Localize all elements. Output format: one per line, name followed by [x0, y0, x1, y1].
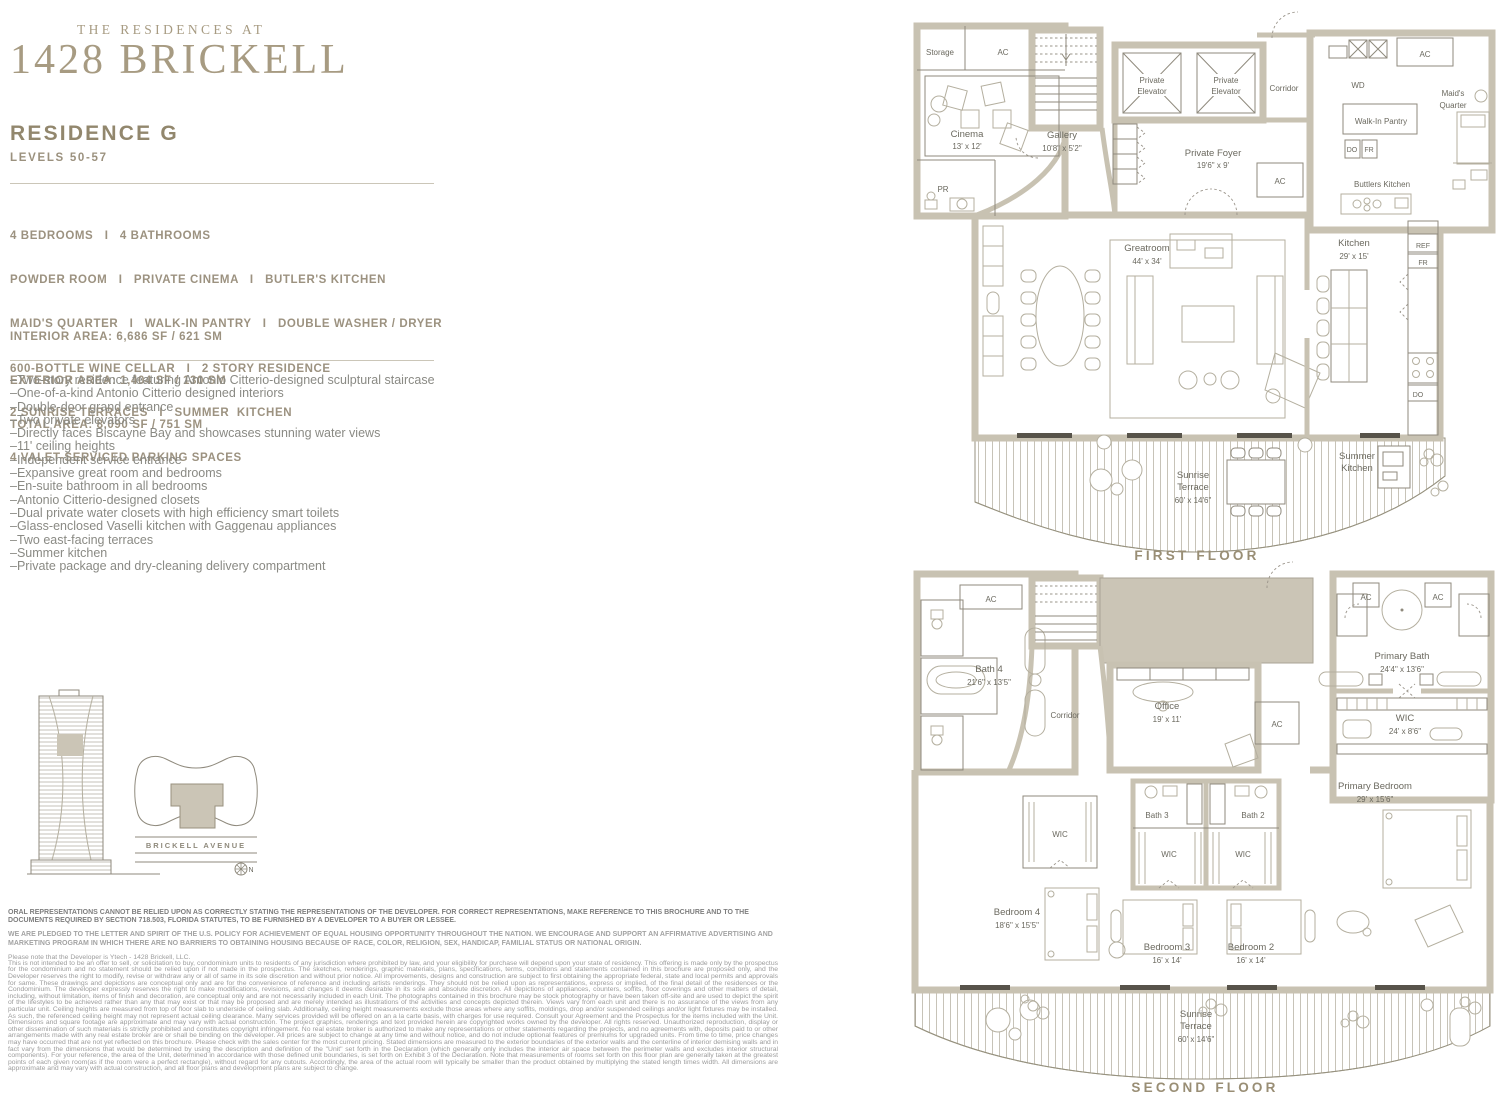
label-cinema: Cinema [951, 129, 984, 140]
legal-disclaimer: ORAL REPRESENTATIONS CANNOT BE RELIED UP… [8, 909, 778, 1073]
label-bath2: Bath 2 [1241, 811, 1265, 820]
feature-bullet: –Summer kitchen [10, 547, 462, 560]
feature-bullet: –En-suite bathroom in all bedrooms [10, 480, 462, 493]
ff-foyer-double-door [1185, 189, 1237, 215]
sf-stair-block [1032, 578, 1100, 646]
svg-text:21'6" x 13'5": 21'6" x 13'5" [967, 678, 1011, 687]
svg-text:19' x 11': 19' x 11' [1153, 715, 1182, 724]
label-ac: AC [1274, 177, 1285, 186]
label-fr: FR [1364, 147, 1373, 154]
svg-text:16' x 14': 16' x 14' [1236, 956, 1266, 965]
svg-text:19'6" x 9': 19'6" x 9' [1197, 161, 1230, 170]
north-compass-icon: N [235, 863, 254, 875]
label-butlers-kitchen: Buttlers Kitchen [1354, 180, 1410, 189]
label-bedroom4: Bedroom 4 [994, 907, 1040, 918]
label-ac: AC [1360, 593, 1371, 602]
key-plan: BRICKELL AVENUE [135, 757, 258, 862]
residence-levels: LEVELS 50-57 [10, 152, 108, 164]
feature-bullet: –Directly faces Biscayne Bay and showcas… [10, 427, 462, 440]
ff-service-block [1310, 33, 1492, 230]
label-pr: PR [937, 185, 948, 194]
feature-bullet: –11' ceiling heights [10, 440, 462, 453]
label-do: DO [1413, 392, 1424, 399]
feature-bullet: –Glass-enclosed Vaselli kitchen with Gag… [10, 520, 462, 533]
second-floor-plan: AC Bath 4 21'6" x 13'5" Corridor [905, 558, 1497, 1098]
label-wic: WIC [1161, 850, 1177, 859]
svg-text:Quarter: Quarter [1439, 101, 1466, 110]
sf-office-block [1110, 665, 1258, 770]
svg-text:16' x 14': 16' x 14' [1152, 956, 1182, 965]
label-summer-kitchen: Summer [1339, 451, 1375, 462]
label-private-elevator: Private [1214, 76, 1239, 85]
label-ac: AC [985, 595, 996, 604]
feature-bullet: –Independent service entrance [10, 454, 462, 467]
label-primary-bedroom: Primary Bedroom [1338, 781, 1412, 792]
label-bedroom2: Bedroom 2 [1228, 942, 1274, 953]
svg-text:24' x 8'6": 24' x 8'6" [1389, 727, 1421, 736]
second-floor-caption: SECOND FLOOR [1131, 1080, 1278, 1095]
svg-text:N: N [248, 867, 253, 874]
divider [10, 360, 434, 361]
feature-bullet: –Dual private water closets with high ef… [10, 507, 462, 520]
label-maids-quarter: Maid's [1442, 89, 1465, 98]
label-bath3: Bath 3 [1145, 811, 1169, 820]
svg-text:60' x 14'6": 60' x 14'6" [1178, 1035, 1215, 1044]
label-ac: AC [1419, 50, 1430, 59]
feature-bullet: –Two private elevators [10, 414, 462, 427]
label-gallery: Gallery [1047, 130, 1077, 141]
street-label: BRICKELL AVENUE [146, 841, 246, 850]
label-ref: REF [1416, 243, 1430, 250]
label-do: DO [1347, 147, 1358, 154]
feature-bullet: –Two east-facing terraces [10, 534, 462, 547]
residence-title: RESIDENCE G [10, 122, 179, 146]
divider [10, 183, 434, 184]
label-sunrise-terrace: Sunrise [1177, 470, 1209, 481]
legal-body: This is not intended to be an offer to s… [8, 961, 778, 1073]
ff-summer-kitchen-unit [1378, 446, 1410, 488]
label-wic: WIC [1052, 830, 1068, 839]
legal-oral-representations: ORAL REPRESENTATIONS CANNOT BE RELIED UP… [8, 909, 778, 925]
svg-text:29' x 15': 29' x 15' [1339, 252, 1369, 261]
label-private-elevator: Private [1140, 76, 1165, 85]
label-wic: WIC [1235, 850, 1251, 859]
label-greatroom: Greatroom [1124, 243, 1169, 254]
svg-text:18'6" x 15'5": 18'6" x 15'5" [995, 921, 1039, 930]
label-walk-in-pantry: Walk-In Pantry [1355, 117, 1407, 126]
feature-bullet: –Expansive great room and bedrooms [10, 467, 462, 480]
svg-text:44' x 34': 44' x 34' [1132, 257, 1162, 266]
svg-text:60' x 14'6": 60' x 14'6" [1175, 496, 1212, 505]
svg-text:Terrace: Terrace [1180, 1021, 1212, 1032]
svg-text:Elevator: Elevator [1137, 87, 1167, 96]
svg-text:Terrace: Terrace [1177, 482, 1209, 493]
feature-bullet: –Private package and dry-cleaning delive… [10, 560, 462, 573]
feature-bullet: –Antonio Citterio-designed closets [10, 494, 462, 507]
label-wic: WIC [1396, 713, 1415, 724]
label-storage: Storage [926, 48, 955, 57]
highlighted-levels [57, 734, 83, 756]
label-corridor: Corridor [1270, 84, 1299, 93]
svg-text:Kitchen: Kitchen [1341, 463, 1373, 474]
svg-text:Elevator: Elevator [1211, 87, 1241, 96]
legal-fair-housing: WE ARE PLEDGED TO THE LETTER AND SPIRIT … [8, 931, 778, 947]
label-primary-bath: Primary Bath [1375, 651, 1430, 662]
feature-bullet: –One-of-a-kind Antonio Citterio designed… [10, 387, 462, 400]
feature-bullet: –Double-door grand entrance [10, 401, 462, 414]
label-bath4: Bath 4 [975, 664, 1002, 675]
feature-bullet: –Two-story residence featuring Antonio C… [10, 374, 462, 387]
label-kitchen: Kitchen [1338, 238, 1370, 249]
label-office: Office [1155, 701, 1180, 712]
label-ac: AC [1432, 593, 1443, 602]
label-fr: FR [1418, 260, 1427, 267]
ff-outdoor-dining [1227, 448, 1285, 516]
first-floor-plan: Storage AC Cinema 13' x 12' PR Gallery 1… [905, 8, 1497, 564]
unit-footprint [171, 784, 223, 828]
building-locator-graphic: BRICKELL AVENUE N [25, 688, 305, 888]
label-corridor: Corridor [1051, 711, 1080, 720]
spec-line: POWDER ROOM I PRIVATE CINEMA I BUTLER'S … [10, 273, 442, 288]
svg-text:24'4" x 13'6": 24'4" x 13'6" [1380, 665, 1424, 674]
brochure-page: THE RESIDENCES AT 1428 BRICKELL RESIDENC… [0, 0, 1500, 1098]
label-wd: WD [1351, 81, 1365, 90]
feature-bullets: –Two-story residence featuring Antonio C… [10, 374, 462, 573]
label-private-foyer: Private Foyer [1185, 148, 1242, 159]
svg-text:10'8" x 5'2": 10'8" x 5'2" [1042, 144, 1082, 153]
sf-open-mass [1100, 578, 1313, 663]
svg-text:29' x 15'6": 29' x 15'6" [1357, 795, 1394, 804]
spec-line: 4 BEDROOMS I 4 BATHROOMS [10, 229, 442, 244]
label-ac: AC [1271, 720, 1282, 729]
label-ac: AC [997, 48, 1008, 57]
svg-text:13' x 12': 13' x 12' [952, 142, 982, 151]
label-bedroom3: Bedroom 3 [1144, 942, 1190, 953]
brand-name: 1428 BRICKELL [10, 36, 349, 84]
area-line: INTERIOR AREA: 6,686 SF / 621 SM [10, 330, 226, 345]
ff-foyer-closets [1113, 124, 1145, 184]
